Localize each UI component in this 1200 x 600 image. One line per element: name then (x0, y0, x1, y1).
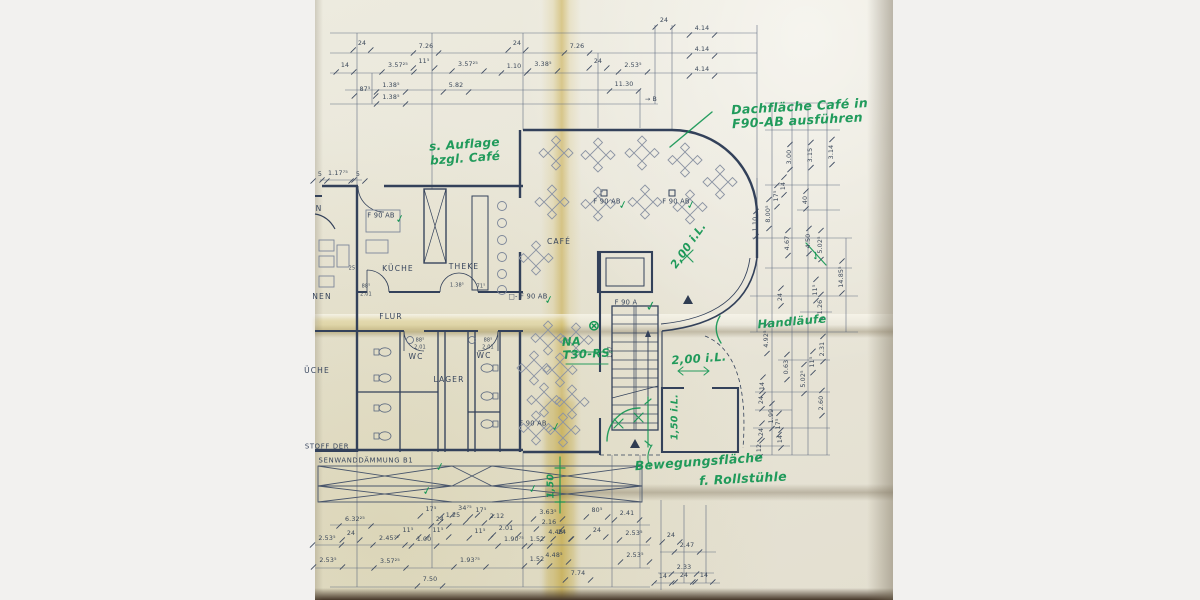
dimension-label: 24 (513, 41, 521, 47)
dimension-label: 1.93⁷⁵ (460, 558, 480, 564)
dimension-label: 2.53⁵ (624, 63, 641, 69)
dimension-label: 87⁵ (360, 87, 371, 93)
dimension-label: 11⁵ (813, 285, 819, 296)
dimension-label: 24 (358, 41, 366, 47)
dimension-label: 1.38⁵ (382, 95, 399, 101)
room-label: WC (408, 353, 423, 361)
fire-rating-label: F 90 AB (519, 421, 547, 428)
dimension-label: 24 (680, 573, 688, 579)
dimension-label: 1.38⁵ (382, 83, 399, 89)
dimension-label: 3.15 (808, 148, 814, 163)
dimension-label: 40 (803, 196, 809, 204)
dimension-label: 11.30 (615, 82, 634, 88)
dimension-label: 4.50 (806, 234, 812, 249)
check-mark: ✓ (543, 294, 554, 307)
dimension-label: 2.33 (677, 565, 692, 571)
dimension-label: 5.02⁵ (818, 236, 824, 253)
dimension-label: 5.82 (449, 83, 464, 89)
dimension-label: 2.12 (490, 514, 505, 520)
fire-rating-label: F 90 AB (367, 213, 395, 220)
handwritten-note: Dachfläche Café in F90-AB ausführen (731, 96, 869, 132)
dimension-label: 3.57²⁵ (388, 63, 408, 69)
handwritten-note: NA T30-RS (562, 334, 611, 363)
dimension-label: 17⁵ (776, 419, 782, 430)
dimension-label: 0.63 (784, 360, 790, 375)
screenshot-of-floor-plan-photo: 247.26247.26244.144.144.14143.57²⁵11⁵3.5… (0, 0, 1200, 600)
dimension-label: 14 (659, 574, 667, 580)
room-label: LAGER (434, 376, 465, 384)
room-label: THEKE (449, 263, 479, 271)
check-mark: ✓ (617, 199, 628, 212)
dimension-label: 2.16 (542, 520, 557, 526)
dimension-label: 11⁵ (433, 528, 444, 534)
dimension-label: 2.41 (620, 511, 635, 517)
room-label: N (316, 205, 323, 213)
dimension-label: → B (645, 97, 657, 103)
dimension-label: 88⁵ (362, 285, 371, 290)
fire-rating-label: F 90 A (615, 300, 638, 307)
dimension-label: 5 (356, 172, 360, 178)
check-mark: ✓ (685, 199, 696, 212)
room-label: KÜCHE (382, 265, 414, 273)
dimension-label: 24 (759, 428, 765, 436)
dimension-label: 2.45⁷⁵ (379, 536, 399, 542)
dimension-label: 80⁵ (592, 508, 603, 514)
dimension-label: 17⁵ (476, 508, 487, 514)
dimension-label: 2.53⁵ (318, 536, 335, 542)
dimension-label: 88⁵ (484, 339, 493, 344)
dimension-label: 17⁵ (426, 507, 437, 513)
dimension-label: 24 (667, 533, 675, 539)
dimension-label: 6.32²⁵ (345, 517, 365, 523)
dimension-label: 2.01 (482, 346, 494, 351)
dimension-label: 11⁵ (403, 528, 414, 534)
dimension-label: 4.14 (695, 26, 710, 32)
dimension-label: 24 (778, 293, 784, 301)
dimension-label: 1.25 (446, 513, 461, 519)
dimension-label: 14 (700, 573, 708, 579)
dimension-label: 5 (318, 172, 322, 178)
label-layer: 247.26247.26244.144.144.14143.57²⁵11⁵3.5… (0, 0, 1200, 600)
dimension-label: 14.85⁵ (839, 266, 845, 287)
dimension-label: 2.01 (499, 526, 514, 532)
dimension-label: 7.26 (570, 44, 585, 50)
dimension-label: 4.48⁵ (545, 553, 562, 559)
check-mark: ✓ (527, 483, 538, 496)
room-label: CAFÉ (547, 238, 571, 246)
room-label: ÜCHE (304, 367, 330, 375)
dimension-label: 2.53⁵ (625, 531, 642, 537)
handwritten-note: s. Auflage bzgl. Café (429, 136, 502, 168)
dimension-label: 3.14 (829, 145, 835, 160)
dimension-label: 3.63⁵ (539, 510, 556, 516)
dimension-label: 1.38⁵ (450, 284, 464, 289)
handwritten-note: f. Rollstühle (699, 470, 788, 489)
dimension-label: 14 (760, 382, 766, 390)
dimension-label: 88⁵ (416, 339, 425, 344)
dimension-label: 14 (341, 63, 349, 69)
handwritten-note: 2,00 i.L. (669, 221, 710, 272)
dimension-label: 24 (593, 528, 601, 534)
dimension-label: 11⁵ (810, 357, 816, 368)
dimension-label: 1.10 (507, 64, 522, 70)
dimension-label: 2.01 (360, 293, 372, 298)
dimension-label: 11⁵ (475, 529, 486, 535)
dimension-label: 7.74 (571, 571, 586, 577)
dimension-label: 11⁵ (419, 59, 430, 65)
dimension-label: 5.02⁵ (801, 370, 807, 387)
dimension-label: 2.47 (680, 543, 695, 549)
dimension-label: 7.50 (423, 577, 438, 583)
dimension-label: 4.14 (695, 47, 710, 53)
dimension-label: 1.90⁷⁵ (504, 537, 524, 543)
handwritten-note: 1,50 (547, 474, 558, 499)
dimension-label: 24 (759, 396, 765, 404)
dimension-label: 4.92⁵ (764, 330, 770, 347)
check-mark: ✓ (644, 300, 657, 315)
dimension-label: 17⁵ (774, 191, 780, 202)
check-mark: ✓ (550, 421, 561, 434)
dimension-label: 2.53⁵ (319, 558, 336, 564)
dimension-label: 1.17⁷⁵ (328, 171, 348, 177)
dimension-label: 8.00⁵ (766, 205, 772, 222)
dimension-label: 3.00 (787, 150, 793, 165)
dimension-label: 2.01 (414, 346, 426, 351)
dimension-label: 24 (594, 59, 602, 65)
check-mark: ✓ (421, 485, 432, 498)
fire-rating-label: □- F 90 AB (508, 294, 547, 301)
printed-note: STOFF DER (305, 444, 349, 451)
printed-note: SENWANDDÄMMUNG B1 (319, 458, 414, 465)
dimension-label: 2.60 (819, 396, 825, 411)
dimension-label: 24 (347, 531, 355, 537)
dimension-label: 25 (349, 267, 356, 272)
dimension-label: 3.57²⁵ (380, 559, 400, 565)
dimension-label: 24 (660, 18, 668, 24)
dimension-label: 7.26 (419, 44, 434, 50)
dimension-label: 2.31 (820, 342, 826, 357)
dimension-label: 1.00 (417, 537, 432, 543)
dimension-label: 71⁵ (477, 285, 486, 290)
dimension-label: 1.52 (530, 557, 545, 563)
dimension-label: 1.52 (530, 537, 545, 543)
room-label: WC (476, 352, 491, 360)
dimension-label: 3.38⁵ (534, 62, 551, 68)
dimension-label: 4.67 (785, 236, 791, 251)
dimension-label: 4.48⁵ (548, 530, 565, 536)
handwritten-note: 2,00 i.L. (671, 350, 727, 367)
check-mark: ✓ (434, 461, 445, 474)
dimension-label: 2.53⁵ (626, 553, 643, 559)
room-label: FLUR (379, 313, 402, 321)
handwritten-note: Handläufe (757, 312, 827, 331)
dimension-label: 14 (778, 435, 784, 443)
dimension-label: 3.57²⁵ (458, 62, 478, 68)
survey-symbol: ⊗ (588, 319, 601, 334)
dimension-label: 14 (781, 182, 787, 190)
check-mark: ✓ (394, 213, 405, 226)
dimension-label: 34⁷⁵ (458, 506, 472, 512)
room-label: NEN (312, 293, 331, 301)
handwritten-note: 1,50 i.L. (671, 394, 682, 440)
dimension-label: 24 (436, 517, 444, 523)
dimension-label: 1.10 (753, 217, 759, 232)
dimension-label: 4.14 (695, 67, 710, 73)
